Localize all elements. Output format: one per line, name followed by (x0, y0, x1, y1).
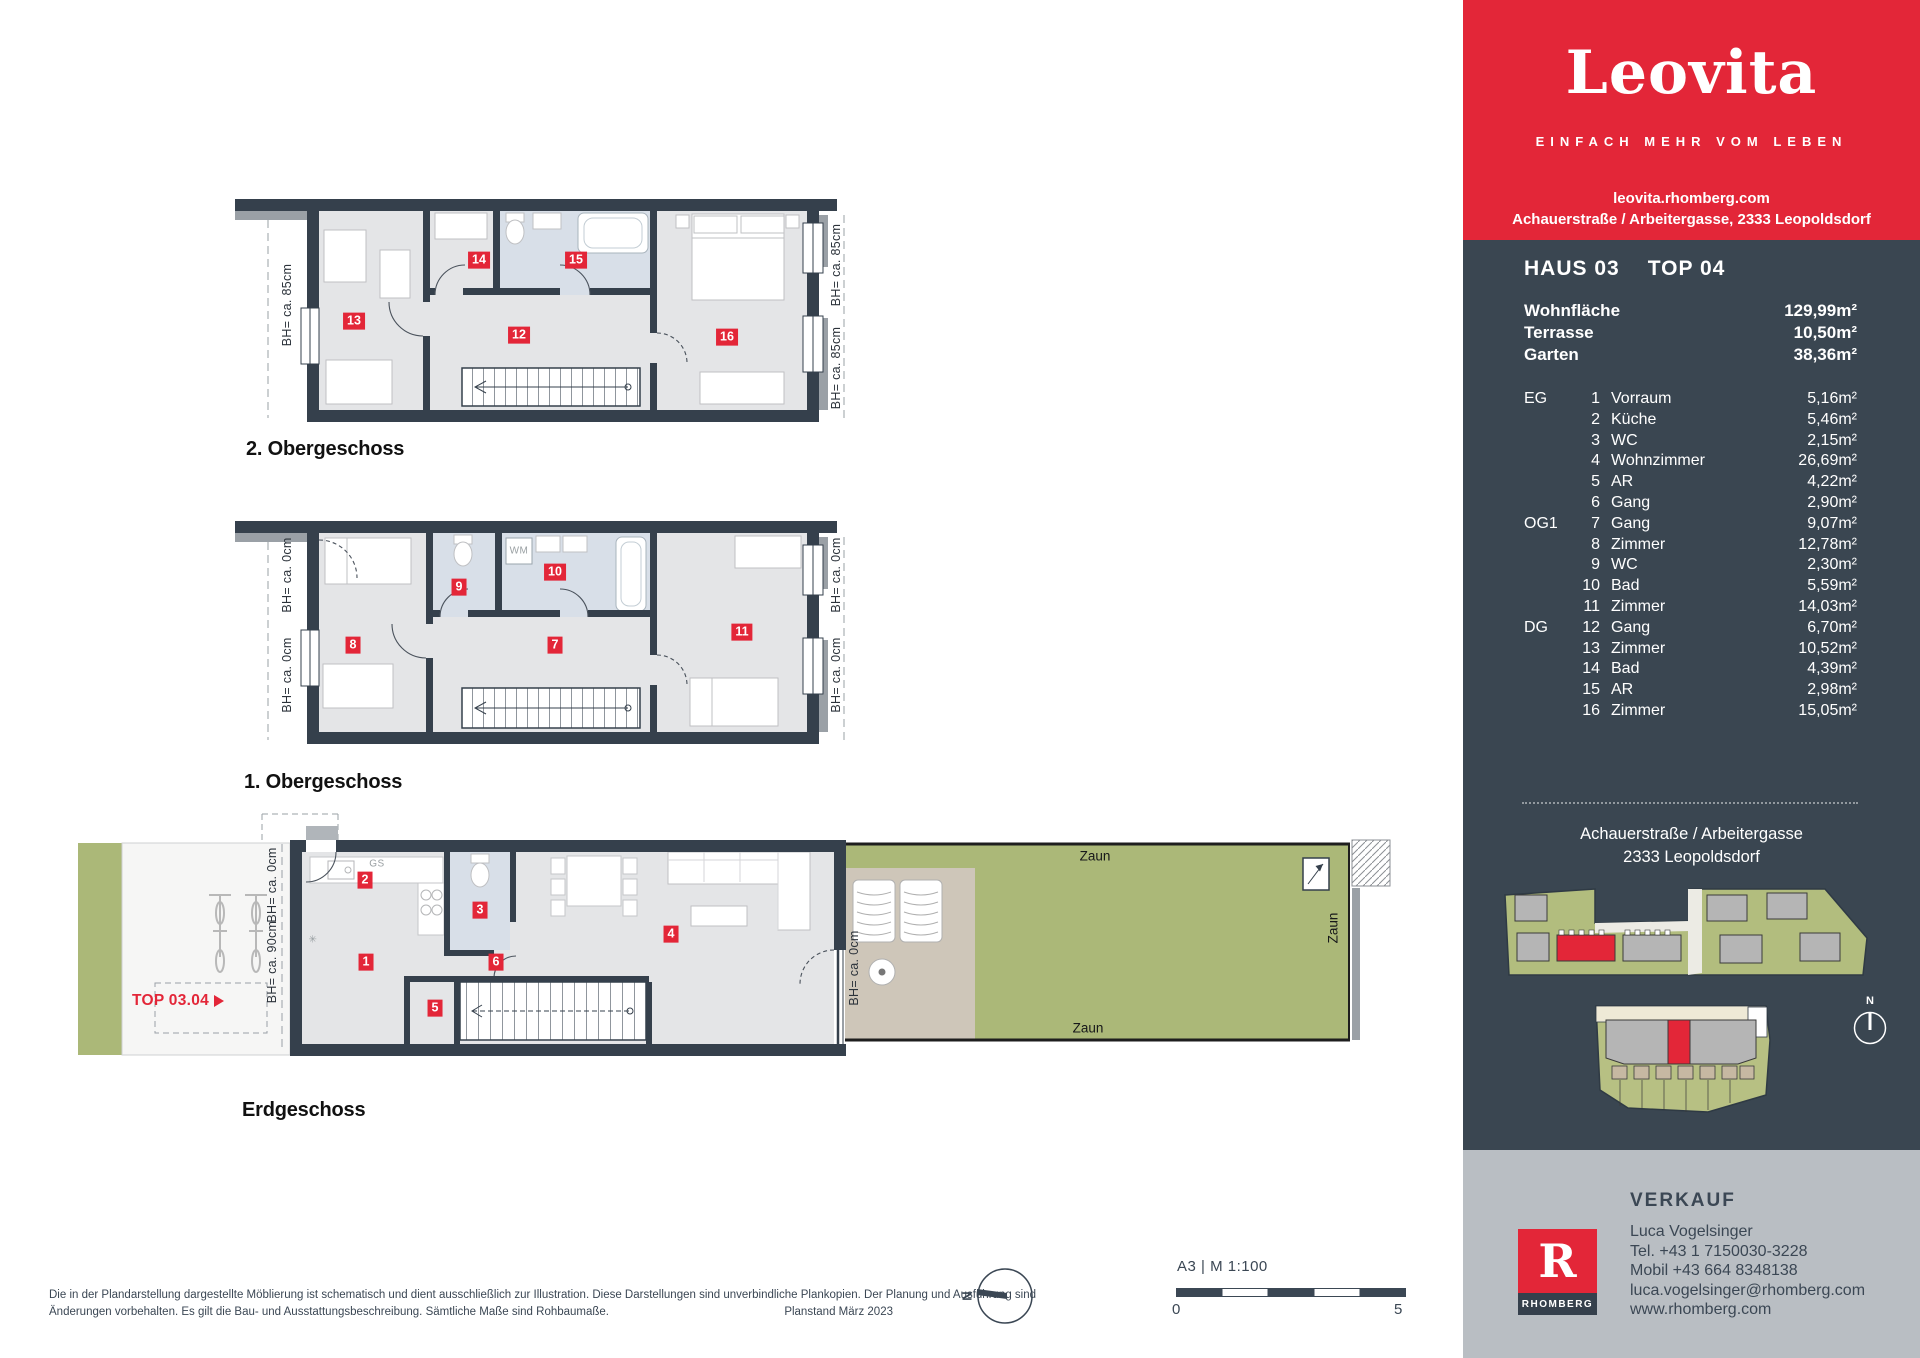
room-floor (1524, 472, 1574, 493)
room-floor (1524, 410, 1574, 431)
room-area: 5,59m² (1798, 576, 1857, 597)
summary-value: 10,50m² (1784, 322, 1857, 344)
room-floor (1524, 493, 1574, 514)
room-number-badge: 12 (508, 327, 530, 344)
plan-eg: TOP 03.04 231654BH= ca. 0cmBH= ca. 90cmB… (70, 800, 1400, 1065)
brand-tagline: EINFACH MEHR VOM LEBEN (1463, 134, 1920, 149)
location-line1: Achauerstraße / Arbeitergasse (1463, 823, 1920, 846)
brand-address: Achauerstraße / Arbeitergasse, 2333 Leop… (1463, 211, 1920, 228)
floor-plan-sheet: 1314151216BH= ca. 85cmBH= ca. 85cmBH= ca… (0, 0, 1920, 1358)
scale-zero: 0 (1172, 1301, 1180, 1318)
brand-website-link[interactable]: leovita.rhomberg.com (1463, 190, 1920, 207)
sheet-scale-label: A3 | M 1:100 (1177, 1258, 1268, 1275)
room-number-badge: 3 (473, 902, 488, 919)
room-floor (1524, 701, 1574, 722)
summary-label: Terrasse (1524, 322, 1784, 344)
room-name: Bad (1600, 576, 1798, 597)
room-floor (1524, 576, 1574, 597)
room-number-badge: 8 (346, 637, 361, 654)
label-eg: Erdgeschoss (242, 1099, 365, 1122)
room-name: Gang (1600, 618, 1798, 639)
room-number: 10 (1574, 576, 1600, 597)
contact-mobil: Mobil +43 664 8348138 (1630, 1261, 1865, 1281)
room-floor: OG1 (1524, 514, 1574, 535)
fence-label: Zaun (1326, 913, 1341, 944)
scale-bar (1176, 1288, 1408, 1298)
room-area: 15,05m² (1798, 701, 1857, 722)
plan-date: Planstand März 2023 (600, 1306, 893, 1318)
summary-value: 38,36m² (1784, 344, 1857, 366)
room-name: Zimmer (1600, 535, 1798, 556)
north-compass-icon: N (960, 1262, 1040, 1332)
room-name: AR (1600, 472, 1798, 493)
unit-marker: TOP 03.04 (132, 992, 224, 1010)
room-number-badge: 13 (343, 313, 365, 330)
rhomberg-logo-letter: R (1518, 1229, 1597, 1293)
label-og2: 2. Obergeschoss (246, 438, 404, 461)
room-floor (1524, 451, 1574, 472)
room-number-badge: 6 (489, 954, 504, 971)
parapet-height-label: BH= ca. 90cm (265, 921, 279, 1003)
brand-header: Leovita EINFACH MEHR VOM LEBEN leovita.r… (1463, 0, 1920, 240)
fence-label: Zaun (1080, 849, 1111, 864)
room-number-badge: 4 (664, 926, 679, 943)
plan-og2: 1314151216BH= ca. 85cmBH= ca. 85cmBH= ca… (230, 190, 860, 425)
room-area: 12,78m² (1798, 535, 1857, 556)
disclaimer-line2: Änderungen vorbehalten. Es gilt die Bau-… (49, 1306, 609, 1318)
area-summary: Wohnfläche129,99m²Terrasse10,50m²Garten3… (1524, 300, 1857, 366)
room-name: Zimmer (1600, 701, 1798, 722)
room-number-badge: 7 (548, 637, 563, 654)
unit-marker-text: TOP 03.04 (132, 992, 209, 1010)
svg-text:N: N (960, 1291, 974, 1300)
room-name: Zimmer (1600, 597, 1798, 618)
room-floor (1524, 431, 1574, 452)
contact-tel: Tel. +43 1 7150030-3228 (1630, 1242, 1865, 1262)
room-number: 7 (1574, 514, 1600, 535)
room-area: 2,30m² (1798, 555, 1857, 576)
parapet-height-label: BH= ca. 0cm (829, 637, 843, 712)
summary-value: 129,99m² (1784, 300, 1857, 322)
parapet-height-label: BH= ca. 85cm (829, 327, 843, 409)
disclaimer-line1: Die in der Plandarstellung dargestellte … (49, 1289, 1036, 1301)
parapet-height-label: BH= ca. 0cm (829, 537, 843, 612)
room-area: 2,15m² (1798, 431, 1857, 452)
room-table: EG1Vorraum5,16m²2Küche5,46m²3WC2,15m²4Wo… (1524, 389, 1857, 722)
site-plan (1495, 883, 1880, 986)
room-name: Küche (1600, 410, 1798, 431)
room-number-badge: 10 (544, 564, 566, 581)
room-floor: EG (1524, 389, 1574, 410)
room-name: Gang (1600, 514, 1798, 535)
unit-haus: HAUS 03 (1524, 257, 1620, 281)
room-number-badge: 2 (358, 872, 373, 889)
room-number: 9 (1574, 555, 1600, 576)
parapet-height-label: BH= ca. 85cm (280, 264, 294, 346)
room-area: 14,03m² (1798, 597, 1857, 618)
plan-og2-drawing (230, 190, 860, 425)
room-number: 1 (1574, 389, 1600, 410)
contact-panel: VERKAUF R RHOMBERG Luca Vogelsinger Tel.… (1463, 1150, 1920, 1358)
room-name: Bad (1600, 659, 1798, 680)
room-area: 4,22m² (1798, 472, 1857, 493)
plan-og1-drawing (230, 512, 860, 747)
room-area: 2,90m² (1798, 493, 1857, 514)
room-number: 12 (1574, 618, 1600, 639)
divider-dotted (1522, 802, 1858, 804)
room-number: 11 (1574, 597, 1600, 618)
room-number: 5 (1574, 472, 1600, 493)
room-number-badge: 14 (468, 252, 490, 269)
parapet-height-label: BH= ca. 85cm (829, 224, 843, 306)
room-area: 10,52m² (1798, 639, 1857, 660)
fixture-label: GS (369, 859, 384, 870)
room-area: 2,98m² (1798, 680, 1857, 701)
svg-text:N: N (1866, 995, 1874, 1007)
contact-web-link[interactable]: www.rhomberg.com (1630, 1300, 1865, 1320)
room-area: 5,16m² (1798, 389, 1857, 410)
parapet-height-label: BH= ca. 0cm (280, 637, 294, 712)
unit-top: TOP 04 (1648, 257, 1726, 281)
room-number: 8 (1574, 535, 1600, 556)
room-area: 6,70m² (1798, 618, 1857, 639)
room-name: WC (1600, 555, 1798, 576)
summary-label: Garten (1524, 344, 1784, 366)
panel-compass-icon: N (1845, 992, 1895, 1052)
parapet-height-label: BH= ca. 0cm (265, 847, 279, 922)
rhomberg-logo-text: RHOMBERG (1518, 1293, 1597, 1315)
room-number-badge: 1 (359, 954, 374, 971)
label-og1: 1. Obergeschoss (244, 771, 402, 794)
room-area: 9,07m² (1798, 514, 1857, 535)
room-area: 26,69m² (1798, 451, 1857, 472)
location-line2: 2333 Leopoldsdorf (1463, 846, 1920, 869)
scale-five: 5 (1394, 1301, 1402, 1318)
room-name: Wohnzimmer (1600, 451, 1798, 472)
room-number: 15 (1574, 680, 1600, 701)
room-name: AR (1600, 680, 1798, 701)
room-area: 5,46m² (1798, 410, 1857, 431)
room-number: 6 (1574, 493, 1600, 514)
fixture-label: WM (510, 546, 529, 557)
room-floor (1524, 597, 1574, 618)
room-number: 14 (1574, 659, 1600, 680)
room-number: 2 (1574, 410, 1600, 431)
room-floor (1524, 659, 1574, 680)
parapet-height-label: BH= ca. 0cm (280, 537, 294, 612)
room-number: 16 (1574, 701, 1600, 722)
room-name: Vorraum (1600, 389, 1798, 410)
room-number-badge: 16 (716, 329, 738, 346)
room-number: 4 (1574, 451, 1600, 472)
brand-logo: Leovita (1463, 38, 1920, 108)
room-name: WC (1600, 431, 1798, 452)
room-floor (1524, 555, 1574, 576)
room-number-badge: 5 (428, 1000, 443, 1017)
contact-details: Luca Vogelsinger Tel. +43 1 7150030-3228… (1630, 1222, 1865, 1320)
project-location: Achauerstraße / Arbeitergasse 2333 Leopo… (1463, 823, 1920, 869)
parapet-height-label: BH= ca. 0cm (847, 930, 861, 1005)
room-name: Zimmer (1600, 639, 1798, 660)
unit-info-panel: HAUS 03 TOP 04 Wohnfläche129,99m²Terrass… (1463, 240, 1920, 1150)
room-area: 4,39m² (1798, 659, 1857, 680)
summary-label: Wohnfläche (1524, 300, 1784, 322)
room-name: Gang (1600, 493, 1798, 514)
room-number-badge: 15 (565, 252, 587, 269)
fence-label: Zaun (1073, 1021, 1104, 1036)
room-floor (1524, 680, 1574, 701)
plan-og1: 8910711BH= ca. 0cmBH= ca. 0cmBH= ca. 0cm… (230, 512, 860, 747)
building-detail-plan (1588, 1000, 1780, 1120)
unit-title: HAUS 03 TOP 04 (1524, 257, 1725, 281)
room-floor (1524, 535, 1574, 556)
contact-title: VERKAUF (1630, 1190, 1736, 1212)
contact-name: Luca Vogelsinger (1630, 1222, 1865, 1242)
rhomberg-logo: R RHOMBERG (1518, 1229, 1597, 1315)
room-number: 3 (1574, 431, 1600, 452)
room-number-badge: 11 (731, 624, 752, 641)
unit-marker-arrow-icon (214, 995, 224, 1007)
contact-email-link[interactable]: luca.vogelsinger@rhomberg.com (1630, 1281, 1865, 1301)
room-number-badge: 9 (452, 579, 467, 596)
room-floor (1524, 639, 1574, 660)
room-floor: DG (1524, 618, 1574, 639)
fixture-label: ✳ (309, 935, 318, 946)
room-number: 13 (1574, 639, 1600, 660)
